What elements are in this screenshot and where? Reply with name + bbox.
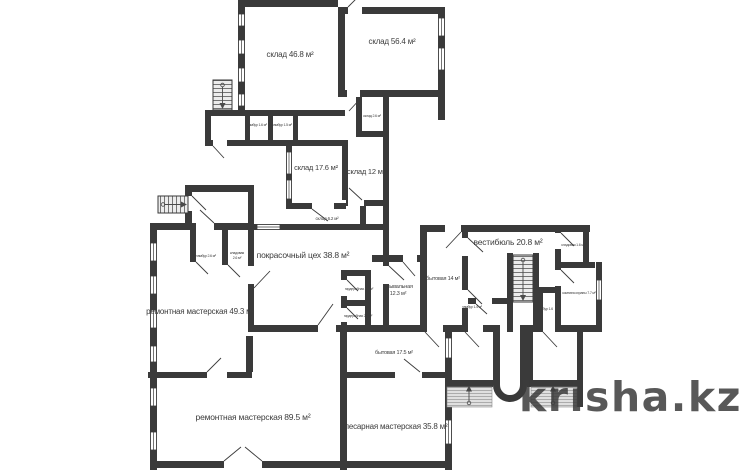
label-vestibyul-20-8: вестибюль 20.8 м² (473, 237, 542, 247)
label-umyvalnaya-1: умывальная (383, 284, 413, 290)
label-kladovaya-2-6-2: 2.6 м² (233, 256, 242, 260)
label-pokrasochny: покрасочный цех 38.8 м² (257, 250, 350, 260)
label-sklad-2-6: склад 2.6 м² (363, 114, 382, 118)
label-remontnaya-89-5: ремонтная мастерская 89.5 м² (196, 412, 311, 422)
label-bytovaya-17-5: бытовая 17.5 м² (375, 350, 413, 356)
stair-vestibule-icon (513, 255, 533, 302)
label-sklad-12: склад 12 м² (347, 167, 386, 176)
label-umyvalnaya-2: 12.3 м² (390, 291, 407, 297)
label-remontnaya-49-3: ремонтная мастерская 49.3 м² (146, 307, 254, 316)
label-sklad-46-8: склад 46.8 м² (267, 50, 314, 59)
label-sklad-17-6: склад 17.6 м² (294, 163, 339, 172)
ramp-left-icon (447, 386, 492, 408)
label-tambur-1-6-right: тамбур 1.6 (537, 307, 553, 311)
stair-entry-left-icon (158, 196, 188, 213)
label-slesarnaya-35-8: слесарная мастерская 35.8 м² (341, 422, 448, 431)
floor-plan-drawing: склад 46.8 м² склад 56.4 м² склад 2.6 м²… (0, 0, 750, 470)
label-tambur-1-4: тамбур 1.4 м² (462, 305, 483, 309)
label-garderobnaya-2-4: гардеробная 2.4 м² (344, 314, 373, 318)
label-garderobnaya-2-8: гардеробная 2.8 м² (345, 287, 374, 291)
label-bytovaya-14: бытовая 14 м² (426, 276, 460, 282)
label-kladovaya-1-6: кладовая 1.6 м² (561, 243, 585, 247)
krisha-watermark: krisha.kz (519, 373, 742, 421)
label-tambur-1-6-top: тамбур 1.6 м² (247, 123, 268, 127)
label-sklad-6-2: склад 6.2 м² (316, 216, 340, 221)
stair-upper-left-icon (213, 80, 232, 110)
floor-plan-page: склад 46.8 м² склад 56.4 м² склад 2.6 м²… (0, 0, 750, 470)
label-tambur-2-6: тамбур 2.6 м² (196, 254, 217, 258)
label-tambur-1-5-top: тамбур 1.5 м² (272, 123, 293, 127)
label-kladovaya-2-6-1: кладовая (230, 251, 244, 255)
label-sklad-56-4: склад 56.4 м² (369, 37, 416, 46)
label-komnata-ohrany: комната охраны 7.7 м² (562, 291, 596, 295)
